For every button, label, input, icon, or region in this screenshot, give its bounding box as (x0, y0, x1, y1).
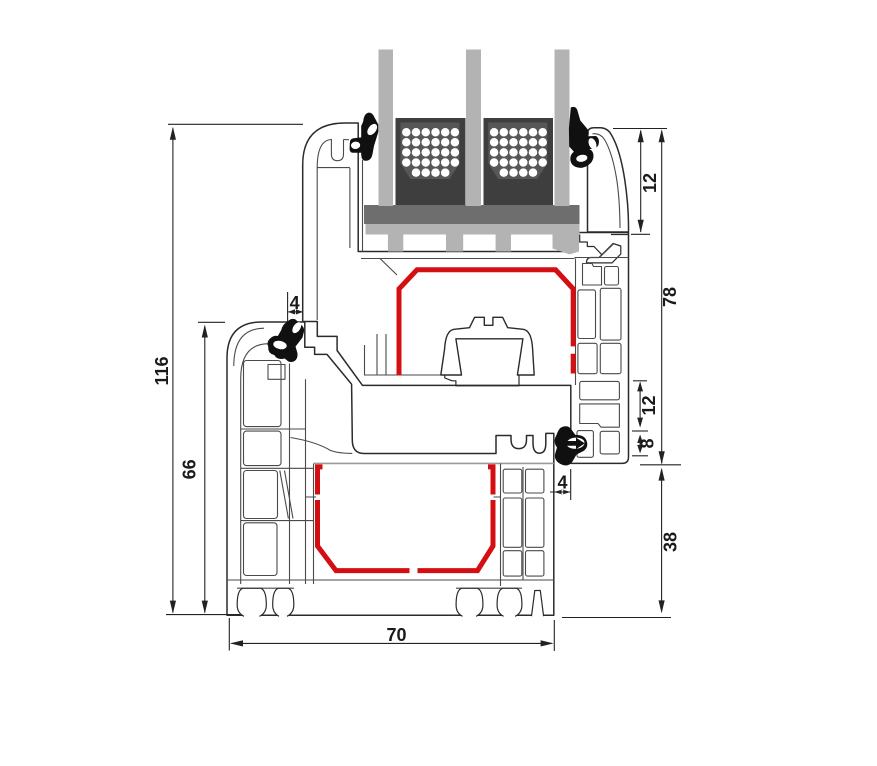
svg-text:116: 116 (152, 356, 172, 385)
svg-text:66: 66 (180, 459, 200, 479)
svg-text:38: 38 (660, 532, 680, 552)
svg-text:8: 8 (638, 438, 658, 448)
svg-text:78: 78 (660, 287, 680, 307)
svg-text:12: 12 (640, 173, 660, 193)
svg-text:4: 4 (557, 473, 567, 493)
svg-text:12: 12 (639, 395, 659, 415)
svg-text:4: 4 (290, 293, 300, 313)
svg-text:70: 70 (386, 625, 406, 645)
